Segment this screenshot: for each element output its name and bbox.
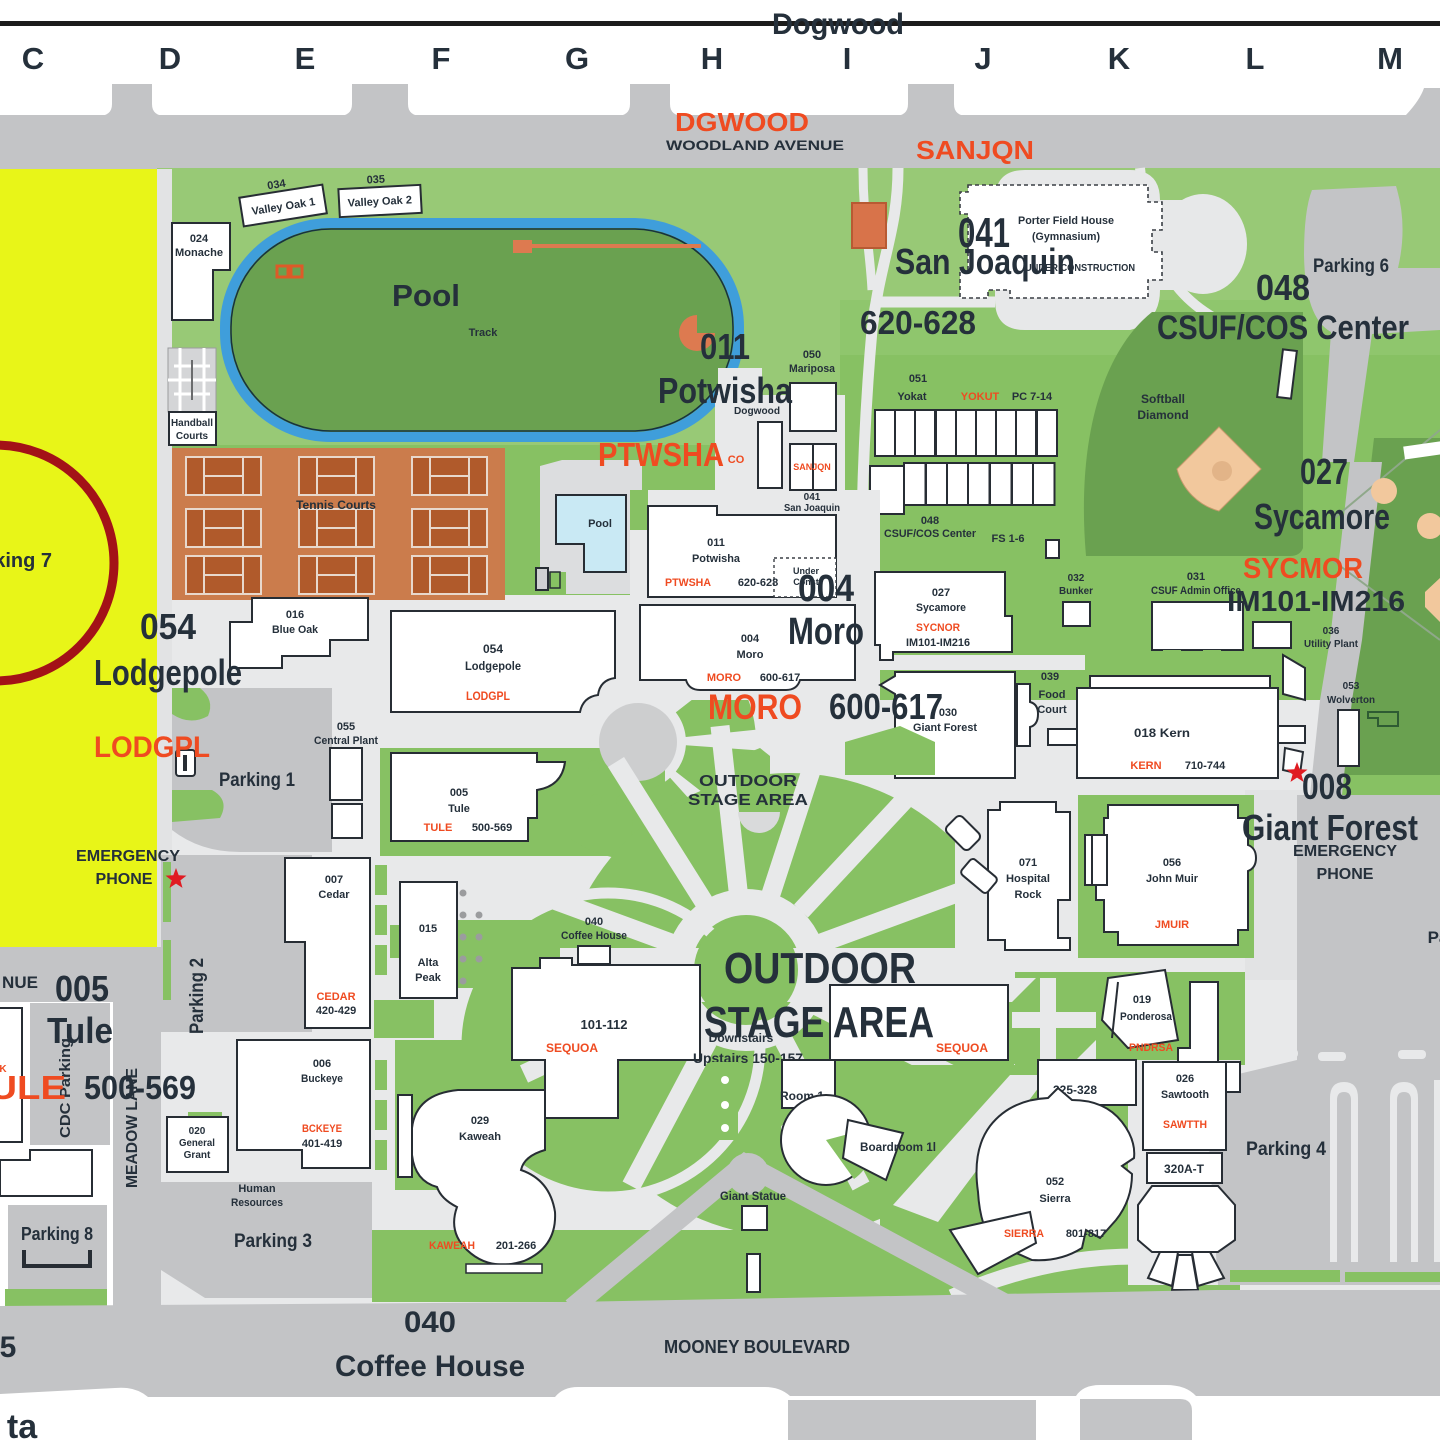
svg-text:SANJQN: SANJQN — [793, 462, 831, 472]
svg-text:500-569: 500-569 — [472, 822, 512, 834]
svg-text:Sawtooth: Sawtooth — [1161, 1089, 1209, 1101]
svg-text:620-628: 620-628 — [860, 304, 976, 341]
svg-text:E: E — [295, 41, 316, 76]
svg-text:054: 054 — [140, 606, 196, 647]
svg-text:Tennis Courts: Tennis Courts — [296, 498, 376, 512]
svg-text:Cedar: Cedar — [318, 889, 350, 901]
svg-text:San Joaquin: San Joaquin — [784, 503, 840, 514]
svg-text:048: 048 — [921, 515, 939, 527]
svg-text:053: 053 — [1343, 681, 1360, 692]
svg-text:San Joaquin: San Joaquin — [895, 241, 1075, 282]
svg-text:040: 040 — [585, 916, 603, 928]
svg-text:054: 054 — [483, 642, 503, 656]
svg-text:Resources: Resources — [231, 1197, 283, 1209]
svg-text:071: 071 — [1019, 857, 1037, 869]
svg-text:OUTDOOR: OUTDOOR — [724, 944, 916, 993]
svg-text:Track: Track — [469, 327, 499, 339]
svg-text:050: 050 — [803, 349, 821, 361]
svg-text:Alta: Alta — [418, 957, 440, 969]
svg-text:Bunker: Bunker — [1059, 586, 1093, 597]
svg-text:I: I — [843, 41, 852, 76]
svg-text:SYCNOR: SYCNOR — [916, 622, 960, 634]
svg-text:Lodgepole: Lodgepole — [94, 652, 242, 693]
svg-text:Sierra: Sierra — [1039, 1193, 1071, 1205]
svg-text:Giant Forest: Giant Forest — [1242, 807, 1418, 848]
svg-text:036: 036 — [1323, 626, 1340, 637]
svg-text:Kaweah: Kaweah — [459, 1131, 501, 1143]
svg-text:EMERGENCY: EMERGENCY — [76, 848, 180, 865]
svg-text:004: 004 — [741, 633, 760, 645]
svg-text:041: 041 — [804, 492, 821, 503]
svg-text:600-617: 600-617 — [760, 672, 800, 684]
svg-text:ta: ta — [7, 1408, 38, 1440]
svg-text:K: K — [1108, 41, 1131, 76]
svg-text:040: 040 — [404, 1306, 456, 1339]
svg-text:F: F — [432, 41, 451, 76]
svg-text:Handball: Handball — [171, 418, 213, 429]
svg-text:CO: CO — [728, 454, 745, 466]
svg-text:101-112: 101-112 — [581, 1017, 628, 1032]
svg-text:PTWSHA: PTWSHA — [665, 577, 711, 589]
svg-text:Parking 7: Parking 7 — [0, 550, 52, 572]
svg-text:Giant Statue: Giant Statue — [720, 1189, 786, 1203]
svg-text:KERN: KERN — [1130, 760, 1161, 772]
svg-text:500-569: 500-569 — [84, 1069, 196, 1106]
svg-text:Boardroom 1l: Boardroom 1l — [860, 1140, 936, 1154]
svg-text:320A-T: 320A-T — [1164, 1162, 1205, 1176]
svg-text:Buckeye: Buckeye — [301, 1073, 343, 1085]
svg-text:D: D — [159, 41, 181, 76]
svg-text:Parking 8: Parking 8 — [21, 1224, 93, 1244]
svg-text:008: 008 — [1302, 766, 1352, 807]
svg-text:801-817: 801-817 — [1066, 1228, 1106, 1240]
svg-text:NUE: NUE — [2, 973, 38, 992]
svg-text:055: 055 — [337, 721, 355, 733]
svg-text:056: 056 — [1163, 857, 1181, 869]
svg-text:TULE: TULE — [424, 822, 453, 834]
svg-text:CSUF/COS Center: CSUF/COS Center — [1157, 309, 1409, 347]
svg-text:015: 015 — [419, 923, 437, 935]
svg-text:Tule: Tule — [47, 1010, 113, 1051]
svg-text:IM101-IM216: IM101-IM216 — [1227, 586, 1405, 618]
svg-text:STAGE AREA: STAGE AREA — [704, 998, 934, 1047]
svg-text:PHONE: PHONE — [1317, 866, 1374, 883]
svg-text:JMUIR: JMUIR — [1155, 919, 1189, 931]
svg-text:Hospital: Hospital — [1006, 873, 1050, 885]
svg-text:PHONE: PHONE — [96, 871, 153, 888]
svg-text:Moro: Moro — [737, 649, 764, 661]
svg-text:FS 1-6: FS 1-6 — [991, 533, 1024, 545]
svg-text:G: G — [565, 41, 589, 76]
svg-text:Sycamore: Sycamore — [1254, 496, 1390, 537]
svg-text:SAWTTH: SAWTTH — [1163, 1119, 1207, 1131]
svg-text:Peak: Peak — [415, 972, 442, 984]
svg-text:L: L — [1246, 41, 1265, 76]
svg-text:PC 7-14: PC 7-14 — [1012, 391, 1053, 403]
svg-text:Moro: Moro — [788, 611, 864, 653]
svg-text:Parking 3: Parking 3 — [234, 1231, 312, 1252]
svg-text:Food: Food — [1039, 689, 1066, 701]
svg-text:011: 011 — [700, 326, 750, 367]
svg-text:SEQUOA: SEQUOA — [546, 1041, 598, 1055]
svg-text:026: 026 — [1176, 1073, 1194, 1085]
svg-text:Sycamore: Sycamore — [916, 602, 966, 614]
svg-text:Grant: Grant — [184, 1150, 211, 1161]
svg-text:600-617: 600-617 — [829, 686, 943, 727]
svg-text:Utility Plant: Utility Plant — [1304, 639, 1359, 650]
svg-text:5: 5 — [0, 1331, 16, 1364]
svg-text:YOKUT: YOKUT — [961, 391, 1000, 403]
svg-text:Tule: Tule — [448, 803, 470, 815]
svg-text:PNDRSA: PNDRSA — [1129, 1042, 1173, 1054]
svg-text:Human: Human — [238, 1183, 276, 1195]
svg-text:Wolverton: Wolverton — [1327, 695, 1375, 706]
svg-text:Lodgepole: Lodgepole — [465, 659, 521, 673]
svg-text:KAWEAH: KAWEAH — [429, 1240, 475, 1252]
svg-text:OUTDOOR: OUTDOOR — [699, 773, 798, 790]
svg-text:Parking 2: Parking 2 — [187, 958, 208, 1034]
svg-text:005: 005 — [450, 787, 468, 799]
svg-text:TULE: TULE — [0, 1069, 66, 1106]
svg-text:Pa: Pa — [1428, 928, 1440, 947]
svg-text:027: 027 — [932, 587, 950, 599]
svg-text:CSUF/COS Center: CSUF/COS Center — [884, 528, 977, 540]
svg-text:Dogwood: Dogwood — [772, 8, 904, 41]
svg-text:020: 020 — [189, 1126, 206, 1137]
svg-text:Blue Oak: Blue Oak — [272, 624, 319, 636]
svg-text:048: 048 — [1256, 267, 1310, 308]
svg-text:SYCMOR: SYCMOR — [1243, 553, 1363, 585]
svg-text:Court: Court — [1037, 704, 1067, 716]
svg-text:STAGE AREA: STAGE AREA — [688, 792, 809, 809]
svg-text:Parking 6: Parking 6 — [1313, 256, 1389, 277]
svg-text:C: C — [22, 41, 44, 76]
svg-text:H: H — [701, 41, 723, 76]
svg-text:018 Kern: 018 Kern — [1134, 726, 1190, 740]
svg-text:620-628: 620-628 — [738, 577, 778, 589]
svg-text:MORO: MORO — [708, 688, 802, 727]
svg-text:MORO: MORO — [707, 672, 742, 684]
svg-text:027: 027 — [1300, 451, 1348, 492]
svg-text:032: 032 — [1068, 573, 1085, 584]
svg-text:Pool: Pool — [392, 278, 460, 313]
svg-text:SEQUOA: SEQUOA — [936, 1041, 988, 1055]
svg-text:031: 031 — [1187, 571, 1205, 583]
svg-text:029: 029 — [471, 1115, 489, 1127]
svg-text:201-266: 201-266 — [496, 1240, 536, 1252]
svg-text:052: 052 — [1046, 1176, 1064, 1188]
svg-text:Parking 4: Parking 4 — [1246, 1139, 1326, 1160]
svg-text:Coffee House: Coffee House — [335, 1350, 525, 1383]
svg-text:Pool: Pool — [588, 518, 612, 530]
svg-text:Potwisha: Potwisha — [692, 553, 741, 565]
svg-text:Parking 1: Parking 1 — [219, 770, 295, 791]
svg-text:019: 019 — [1133, 994, 1151, 1006]
svg-text:General: General — [179, 1138, 215, 1149]
svg-text:004: 004 — [798, 568, 854, 610]
svg-text:Central Plant: Central Plant — [314, 735, 378, 747]
svg-text:WOODLAND AVENUE: WOODLAND AVENUE — [666, 137, 844, 153]
svg-text:SIERRA: SIERRA — [1004, 1228, 1044, 1240]
svg-text:035: 035 — [366, 174, 385, 187]
svg-text:J: J — [974, 41, 991, 76]
svg-text:Yokat: Yokat — [897, 391, 926, 403]
svg-text:LODGPL: LODGPL — [94, 731, 210, 764]
svg-text:DGWOOD: DGWOOD — [675, 107, 809, 137]
svg-text:007: 007 — [325, 874, 343, 886]
svg-text:LODGPL: LODGPL — [466, 689, 510, 703]
svg-text:Softball: Softball — [1141, 392, 1185, 406]
svg-text:IM101-IM216: IM101-IM216 — [906, 637, 970, 649]
svg-text:Potwisha: Potwisha — [658, 370, 793, 411]
svg-text:Ponderosa: Ponderosa — [1120, 1011, 1173, 1023]
svg-text:Rock: Rock — [1015, 889, 1043, 901]
svg-text:CEDAR: CEDAR — [316, 991, 355, 1003]
svg-text:MOONEY BOULEVARD: MOONEY BOULEVARD — [664, 1337, 850, 1357]
svg-text:Porter Field House: Porter Field House — [1018, 215, 1114, 227]
svg-text:Courts: Courts — [176, 431, 209, 442]
svg-text:Monache: Monache — [175, 247, 223, 259]
svg-text:401-419: 401-419 — [302, 1138, 342, 1150]
svg-text:039: 039 — [1041, 671, 1059, 683]
svg-text:420-429: 420-429 — [316, 1005, 356, 1017]
svg-text:M: M — [1377, 41, 1403, 76]
svg-text:PTWSHA: PTWSHA — [598, 436, 724, 473]
svg-text:Mariposa: Mariposa — [789, 363, 836, 375]
svg-text:John Muir: John Muir — [1146, 873, 1199, 885]
svg-text:Diamond: Diamond — [1137, 408, 1188, 422]
svg-text:016: 016 — [286, 609, 304, 621]
svg-text:006: 006 — [313, 1058, 331, 1070]
svg-text:024: 024 — [190, 233, 209, 245]
svg-text:SANJQN: SANJQN — [916, 135, 1034, 165]
svg-text:005: 005 — [55, 968, 109, 1009]
svg-text:011: 011 — [707, 537, 725, 549]
svg-text:BCKEYE: BCKEYE — [302, 1123, 342, 1135]
svg-text:051: 051 — [909, 373, 927, 385]
svg-text:710-744: 710-744 — [1185, 760, 1226, 772]
svg-text:Coffee House: Coffee House — [561, 930, 627, 942]
